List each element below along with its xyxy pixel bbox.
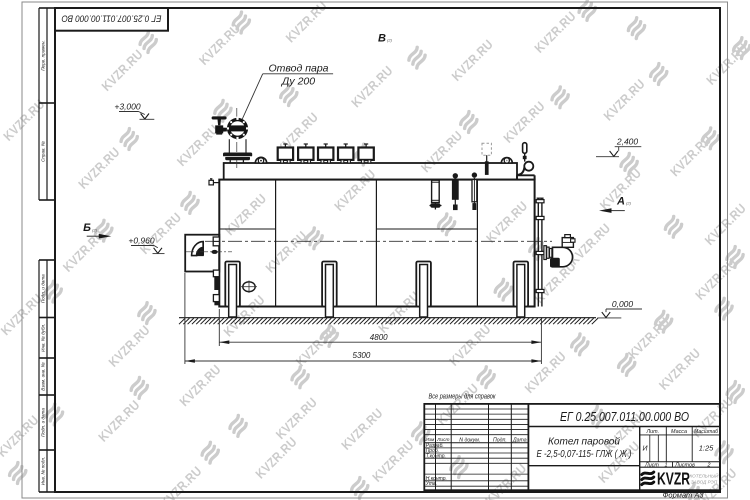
svg-text:Все размеры для справок: Все размеры для справок	[429, 392, 496, 401]
svg-text:ЕГ 0.25.007.011.00.000 ВО: ЕГ 0.25.007.011.00.000 ВО	[560, 409, 689, 424]
svg-text:2,400: 2,400	[616, 137, 639, 147]
svg-text:1: 1	[665, 462, 668, 468]
svg-text:Подп. и дата: Подп. и дата	[41, 274, 46, 303]
svg-text:4800: 4800	[370, 333, 388, 342]
svg-text:Масса: Масса	[671, 429, 687, 435]
svg-text:Листов: Листов	[674, 462, 695, 468]
svg-text:Б: Б	[83, 222, 91, 234]
svg-text:5300: 5300	[353, 351, 371, 360]
svg-text:1:25: 1:25	[699, 444, 714, 453]
svg-text:Перв. примен.: Перв. примен.	[41, 40, 46, 71]
svg-text:Формат А3: Формат А3	[662, 491, 704, 500]
svg-text:(2): (2)	[387, 38, 393, 43]
svg-text:(2): (2)	[626, 201, 632, 206]
svg-text:Утв.: Утв.	[426, 481, 437, 487]
svg-text:А: А	[616, 196, 625, 208]
svg-text:Отвод пара: Отвод пара	[268, 62, 328, 74]
svg-text:2: 2	[707, 462, 711, 468]
svg-text:Дата: Дата	[512, 437, 527, 443]
svg-text:Ду 200: Ду 200	[281, 75, 315, 87]
svg-text:В: В	[378, 33, 386, 45]
svg-text:КОТЕЛЬНЫЙ: КОТЕЛЬНЫЙ	[690, 472, 720, 479]
svg-text:Масштаб: Масштаб	[694, 429, 719, 435]
svg-text:(2): (2)	[92, 228, 98, 233]
svg-text:Т.контр.: Т.контр.	[426, 453, 446, 459]
svg-text:+3,000: +3,000	[114, 102, 141, 112]
svg-text:Инв. № подл.: Инв. № подл.	[41, 457, 46, 486]
svg-text:Справ. №: Справ. №	[41, 141, 46, 162]
svg-text:Лит.: Лит.	[645, 429, 659, 435]
svg-text:ЗАВОД РЭП: ЗАВОД РЭП	[691, 480, 718, 485]
svg-text:Е -2,5-0,07-115- ГЛЖ ( Ж ): Е -2,5-0,07-115- ГЛЖ ( Ж )	[537, 449, 632, 460]
svg-text:Инв. № дубл.: Инв. № дубл.	[41, 324, 46, 352]
svg-text:ЕГ 0.25.007.011.00.000 ВО: ЕГ 0.25.007.011.00.000 ВО	[61, 13, 162, 24]
svg-text:0,000: 0,000	[612, 299, 634, 309]
svg-text:Подп. и дата: Подп. и дата	[41, 408, 46, 437]
svg-text:Взам. инв. №: Взам. инв. №	[41, 362, 46, 390]
svg-text:KVZR: KVZR	[657, 469, 690, 489]
svg-text:Подп.: Подп.	[493, 437, 507, 443]
svg-text:+0,960: +0,960	[128, 236, 155, 246]
svg-text:Лист: Лист	[644, 462, 659, 468]
svg-text:Котел паровой: Котел паровой	[548, 437, 620, 448]
svg-text:N докум.: N докум.	[459, 437, 480, 443]
